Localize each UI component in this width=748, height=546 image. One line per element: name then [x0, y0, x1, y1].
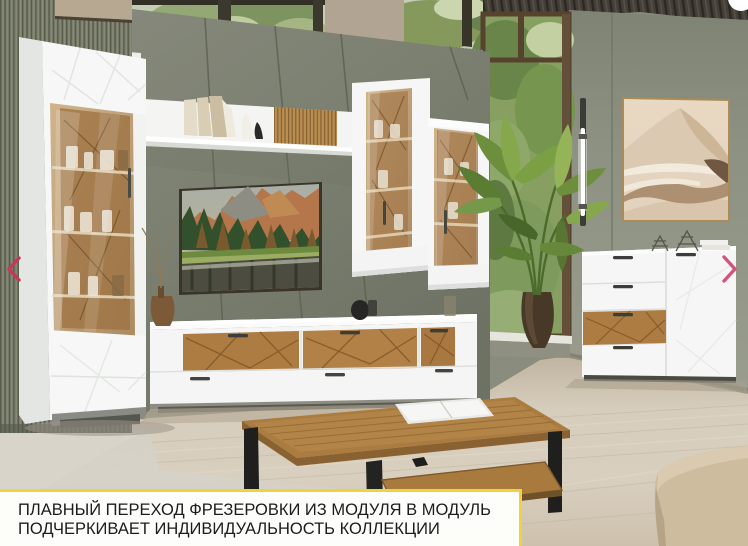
svg-text:ПОДЧЕРКИВАЕТ ИНДИВИДУАЛЬНОСТЬ: ПОДЧЕРКИВАЕТ ИНДИВИДУАЛЬНОСТЬ КОЛЛЕКЦИИ — [18, 520, 440, 538]
svg-text:ПЛАВНЫЙ ПЕРЕХОД ФРЕЗЕРОВКИ ИЗ: ПЛАВНЫЙ ПЕРЕХОД ФРЕЗЕРОВКИ ИЗ МОДУЛЯ В М… — [18, 500, 491, 519]
